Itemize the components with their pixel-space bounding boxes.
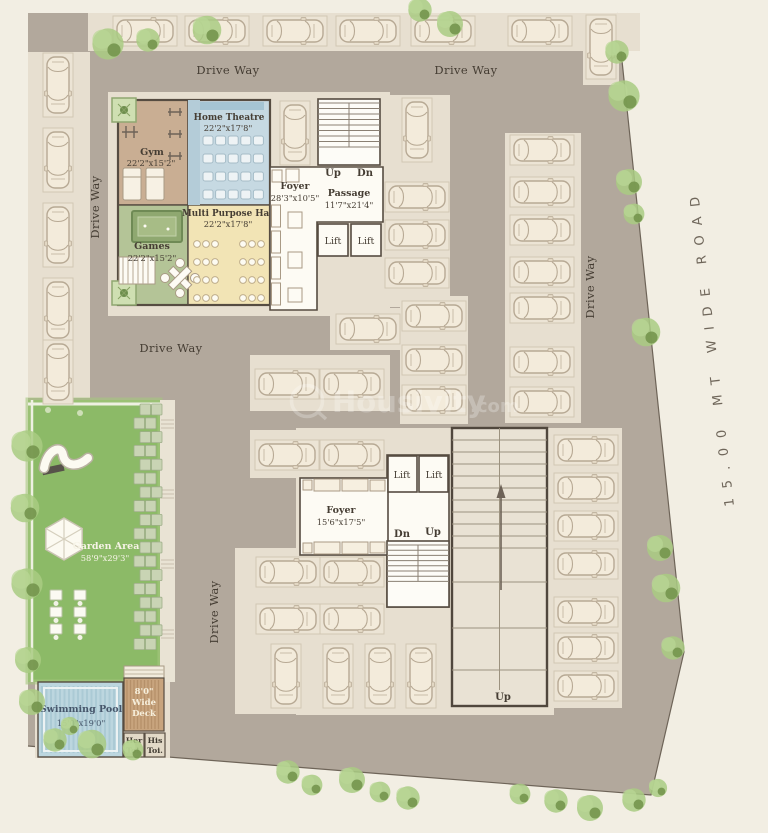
lift-1-label: Lift xyxy=(325,236,342,247)
car-icon xyxy=(260,606,316,633)
pool-label: Swimming Pool xyxy=(40,704,123,715)
tree-icon xyxy=(577,795,603,821)
planter-icon xyxy=(112,281,136,305)
car-icon xyxy=(267,18,323,45)
tree-icon xyxy=(78,730,107,759)
planter-icon xyxy=(112,98,136,122)
car-icon xyxy=(340,316,396,343)
his-toilet-label: His xyxy=(148,736,163,745)
car-icon xyxy=(514,137,570,164)
garden-area: Garden Area 58'9"x29'3" xyxy=(28,400,175,682)
tree-icon xyxy=(339,767,365,793)
deck-dim: 8'0" xyxy=(135,687,154,697)
lower-stairs-up: Up xyxy=(425,527,441,538)
car-icon xyxy=(558,599,614,626)
upper-foyer-dim: 28'3"x10'5" xyxy=(271,193,320,203)
car-icon xyxy=(45,207,72,263)
car-icon xyxy=(514,349,570,376)
tree-icon xyxy=(19,689,45,715)
tree-icon xyxy=(11,430,42,461)
car-icon xyxy=(45,57,72,113)
multi-purpose-hall-dim: 22'2"x17'8" xyxy=(204,219,253,229)
gym-label: Gym xyxy=(140,147,164,158)
tree-icon xyxy=(61,717,79,735)
tree-icon xyxy=(302,775,323,796)
tree-icon xyxy=(647,535,673,561)
home-theatre-dim: 22'2"x17'8" xyxy=(204,123,253,133)
deck-label-1: Wide xyxy=(131,698,157,708)
car-icon xyxy=(514,295,570,322)
watermark-suffix: .com xyxy=(470,396,519,417)
driveway-label-top-right: Drive Way xyxy=(434,63,497,77)
car-icon xyxy=(324,442,380,469)
car-icon xyxy=(367,648,394,704)
driveway-label-mid: Drive Way xyxy=(139,341,202,355)
garden-dim: 58'9"x29'3" xyxy=(81,553,130,563)
car-icon xyxy=(558,513,614,540)
lift-3-label: Lift xyxy=(394,470,411,481)
tree-icon xyxy=(622,788,645,811)
lift-2-label: Lift xyxy=(358,236,375,247)
tree-icon xyxy=(437,11,463,37)
tree-icon xyxy=(11,568,42,599)
car-icon xyxy=(389,222,445,249)
tree-icon xyxy=(123,740,144,761)
tree-icon xyxy=(276,760,299,783)
car-icon xyxy=(273,648,300,704)
lower-stairs-dn: Dn xyxy=(394,529,411,540)
tree-icon xyxy=(11,494,40,523)
upper-foyer-label: Foyer xyxy=(280,181,310,192)
car-icon xyxy=(45,344,72,400)
tree-icon xyxy=(544,789,567,812)
tree-icon xyxy=(616,169,642,195)
tree-icon xyxy=(136,28,159,51)
his-toilet-label2: Toi. xyxy=(147,746,163,755)
car-icon xyxy=(558,551,614,578)
watermark-name: Housivity xyxy=(332,385,486,419)
ramp-up-label: Up xyxy=(495,692,511,703)
car-icon xyxy=(512,18,568,45)
car-icon xyxy=(514,389,570,416)
car-icon xyxy=(514,259,570,286)
theatre-screen xyxy=(200,102,264,110)
tree-icon xyxy=(92,28,123,59)
car-icon xyxy=(45,132,72,188)
car-icon xyxy=(259,442,315,469)
tree-icon xyxy=(608,80,639,111)
passage-label: Passage xyxy=(328,188,371,199)
car-icon xyxy=(404,102,431,158)
upper-stairs-dn: Dn xyxy=(357,168,374,179)
car-icon xyxy=(260,559,316,586)
car-icon xyxy=(389,260,445,287)
car-icon xyxy=(324,606,380,633)
car-icon xyxy=(325,648,352,704)
lower-foyer-dim: 15'6"x17'5" xyxy=(317,517,366,527)
passage-dim: 11'7"x21'4" xyxy=(325,200,374,210)
tree-icon xyxy=(649,779,667,797)
lower-foyer-label: Foyer xyxy=(326,505,356,516)
floor-plan-image: Garden Area 58'9"x29'3" Swimming Pool 15… xyxy=(0,0,768,833)
tree-icon xyxy=(15,647,41,673)
car-icon xyxy=(45,282,72,338)
tree-icon xyxy=(624,204,645,225)
driveway-label-bottom: Drive Way xyxy=(207,580,221,643)
games-dim: 22'2"x15'2" xyxy=(128,253,177,263)
driveway-label-right: Drive Way xyxy=(583,255,597,318)
car-icon xyxy=(558,475,614,502)
car-icon xyxy=(408,648,435,704)
driveway-label-top-left: Drive Way xyxy=(196,63,259,77)
car-icon xyxy=(389,184,445,211)
upper-stairs-up: Up xyxy=(325,168,341,179)
driveway-label-left: Drive Way xyxy=(88,175,102,238)
tree-icon xyxy=(510,784,531,805)
car-icon xyxy=(558,635,614,662)
gym-dim: 22'2"x15'2" xyxy=(127,158,176,168)
car-icon xyxy=(558,437,614,464)
tree-icon xyxy=(396,786,419,809)
multi-purpose-hall-label: Multi Purpose Hall xyxy=(182,209,277,219)
car-icon xyxy=(406,303,462,330)
garden-label: Garden Area xyxy=(73,541,140,552)
lift-4-label: Lift xyxy=(426,470,443,481)
deck-steps xyxy=(124,666,164,678)
deck-label-2: Deck xyxy=(132,709,157,719)
home-theatre-label: Home Theatre xyxy=(194,113,265,123)
site-plan: Garden Area 58'9"x29'3" Swimming Pool 15… xyxy=(0,0,768,833)
car-icon xyxy=(558,673,614,700)
car-icon xyxy=(514,217,570,244)
tree-icon xyxy=(193,16,222,45)
car-icon xyxy=(340,18,396,45)
tree-icon xyxy=(370,782,391,803)
car-icon xyxy=(514,179,570,206)
games-label: Games xyxy=(134,241,170,252)
tree-icon xyxy=(652,574,681,603)
tree-icon xyxy=(605,40,628,63)
car-icon xyxy=(324,559,380,586)
car-icon xyxy=(282,105,309,161)
tree-icon xyxy=(661,636,684,659)
car-icon xyxy=(406,347,462,374)
tree-icon xyxy=(632,318,661,347)
